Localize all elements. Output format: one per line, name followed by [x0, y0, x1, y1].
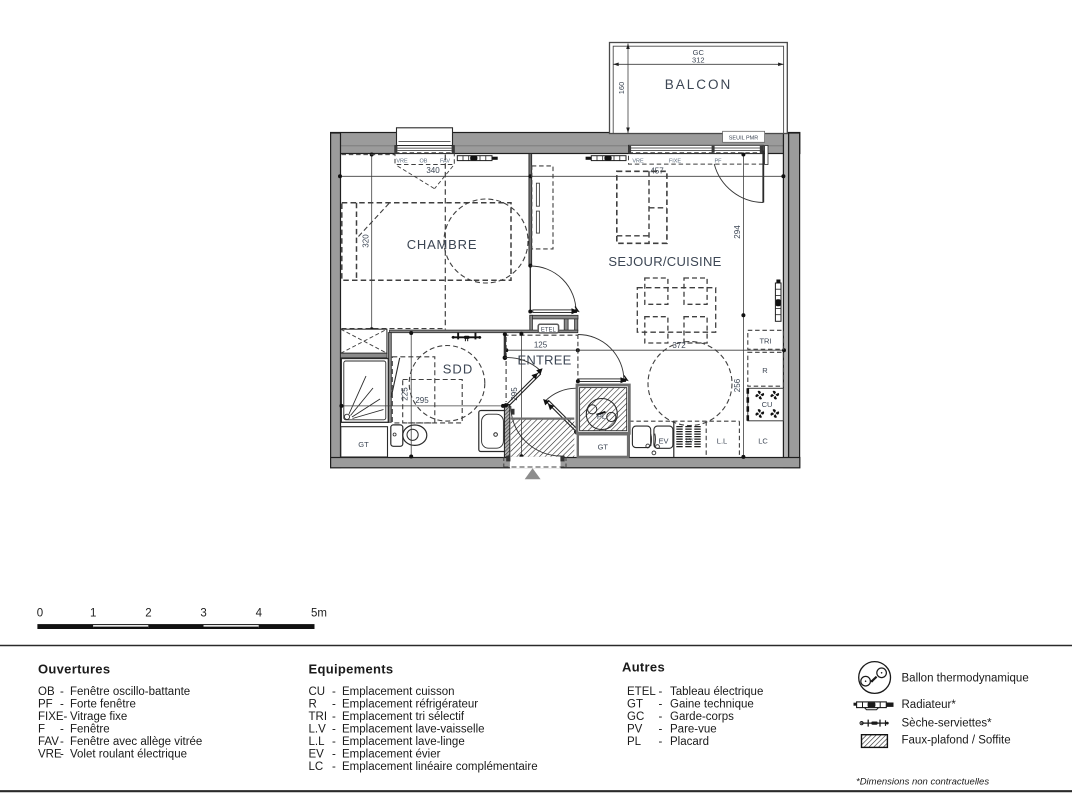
svg-text:Forte fenêtre: Forte fenêtre: [70, 698, 136, 710]
svg-text:-: -: [332, 698, 336, 710]
svg-text:TRI: TRI: [759, 337, 771, 346]
svg-text:ETEL: ETEL: [541, 327, 557, 333]
svg-text:-: -: [332, 686, 336, 698]
svg-text:294: 294: [733, 225, 742, 239]
svg-text:Ouvertures: Ouvertures: [38, 662, 110, 677]
svg-text:ETEL: ETEL: [627, 686, 656, 698]
svg-text:FAV: FAV: [38, 736, 59, 748]
svg-text:EV: EV: [309, 748, 325, 760]
svg-text:R: R: [762, 366, 768, 375]
svg-text:L.L: L.L: [717, 436, 727, 445]
svg-text:SEJOUR/CUISINE: SEJOUR/CUISINE: [608, 254, 721, 269]
svg-text:EV: EV: [658, 436, 668, 445]
svg-text:L.L: L.L: [309, 736, 326, 748]
svg-text:Equipements: Equipements: [309, 662, 394, 677]
svg-text:Emplacement linéaire complémen: Emplacement linéaire complémentaire: [342, 761, 538, 773]
svg-text:312: 312: [692, 55, 705, 64]
svg-text:-: -: [332, 748, 336, 760]
svg-text:Emplacement tri sélectif: Emplacement tri sélectif: [342, 711, 465, 723]
svg-text:295: 295: [415, 396, 429, 405]
svg-text:225: 225: [401, 387, 410, 401]
svg-text:Emplacement réfrigérateur: Emplacement réfrigérateur: [342, 698, 478, 710]
svg-text:R: R: [309, 698, 317, 710]
svg-text:CU: CU: [309, 686, 326, 698]
svg-text:SDD: SDD: [443, 361, 473, 376]
svg-text:VRE: VRE: [396, 159, 408, 165]
svg-text:Fenêtre: Fenêtre: [70, 723, 110, 735]
svg-text:-: -: [60, 748, 64, 760]
svg-text:-: -: [60, 736, 64, 748]
svg-text:F: F: [38, 723, 45, 735]
svg-text:-: -: [332, 711, 336, 723]
svg-text:160: 160: [617, 82, 626, 95]
svg-text:Vitrage fixe: Vitrage fixe: [70, 711, 127, 723]
svg-text:FIXE: FIXE: [669, 159, 682, 165]
svg-text:Radiateur*: Radiateur*: [902, 699, 957, 711]
svg-text:-: -: [659, 686, 663, 698]
svg-text:Emplacement lave-vaisselle: Emplacement lave-vaisselle: [342, 723, 485, 735]
svg-text:1: 1: [90, 608, 96, 620]
svg-text:CHAMBRE: CHAMBRE: [407, 237, 478, 252]
svg-text:TRI: TRI: [309, 711, 328, 723]
svg-text:GT: GT: [598, 443, 609, 452]
svg-text:L.V: L.V: [309, 723, 327, 735]
svg-text:-: -: [332, 723, 336, 735]
svg-text:Volet roulant électrique: Volet roulant électrique: [70, 748, 187, 760]
svg-text:-: -: [659, 723, 663, 735]
svg-text:LC: LC: [758, 436, 768, 445]
svg-text:125: 125: [534, 340, 548, 349]
svg-text:Tableau électrique: Tableau électrique: [670, 686, 763, 698]
svg-text:Pare-vue: Pare-vue: [670, 723, 717, 735]
svg-text:Emplacement cuisson: Emplacement cuisson: [342, 686, 455, 698]
svg-text:Emplacement évier: Emplacement évier: [342, 748, 441, 760]
svg-text:320: 320: [362, 234, 371, 248]
svg-text:SEUIL PMR: SEUIL PMR: [729, 135, 758, 141]
svg-text:4: 4: [256, 608, 263, 620]
svg-text:5m: 5m: [311, 608, 327, 620]
svg-text:-: -: [60, 698, 64, 710]
svg-text:GT: GT: [627, 698, 643, 710]
svg-text:Faux-plafond / Soffite: Faux-plafond / Soffite: [902, 734, 1011, 746]
svg-text:*Dimensions non contractuelles: *Dimensions non contractuelles: [856, 777, 989, 788]
svg-text:VRE: VRE: [632, 159, 644, 165]
svg-text:PV: PV: [627, 723, 643, 735]
svg-text:FIXE-: FIXE-: [38, 711, 68, 723]
svg-text:372: 372: [672, 341, 686, 350]
svg-text:-: -: [332, 761, 336, 773]
svg-text:PL: PL: [627, 736, 642, 748]
svg-text:Fenêtre oscillo-battante: Fenêtre oscillo-battante: [70, 686, 190, 698]
svg-text:GC: GC: [627, 711, 644, 723]
svg-text:OB: OB: [420, 159, 428, 165]
svg-text:0: 0: [37, 608, 43, 620]
svg-text:Autres: Autres: [622, 660, 665, 675]
svg-text:256: 256: [733, 378, 742, 392]
svg-text:BALCON: BALCON: [665, 77, 733, 92]
svg-text:Ballon thermodynamique: Ballon thermodynamique: [902, 673, 1029, 685]
svg-text:GT: GT: [358, 440, 369, 449]
svg-text:Gaine technique: Gaine technique: [670, 698, 754, 710]
svg-text:PF: PF: [714, 159, 722, 165]
svg-text:ENTREE: ENTREE: [518, 352, 572, 367]
svg-text:-: -: [332, 736, 336, 748]
svg-text:-: -: [659, 736, 663, 748]
svg-text:Fenêtre avec allège vitrée: Fenêtre avec allège vitrée: [70, 736, 202, 748]
svg-text:LC: LC: [309, 761, 324, 773]
svg-text:OB: OB: [38, 686, 55, 698]
svg-text:PL: PL: [597, 412, 606, 421]
svg-text:340: 340: [426, 166, 440, 175]
svg-text:Emplacement lave-linge: Emplacement lave-linge: [342, 736, 465, 748]
svg-text:Sèche-serviettes*: Sèche-serviettes*: [902, 718, 993, 730]
svg-text:CU: CU: [762, 400, 773, 409]
svg-text:Garde-corps: Garde-corps: [670, 711, 734, 723]
svg-text:-: -: [60, 686, 64, 698]
svg-text:3: 3: [200, 608, 206, 620]
svg-text:VRE: VRE: [38, 748, 62, 760]
svg-text:PF: PF: [38, 698, 53, 710]
svg-text:2: 2: [145, 608, 151, 620]
svg-text:-: -: [60, 723, 64, 735]
svg-text:-: -: [659, 698, 663, 710]
svg-text:-: -: [659, 711, 663, 723]
svg-text:Placard: Placard: [670, 736, 709, 748]
